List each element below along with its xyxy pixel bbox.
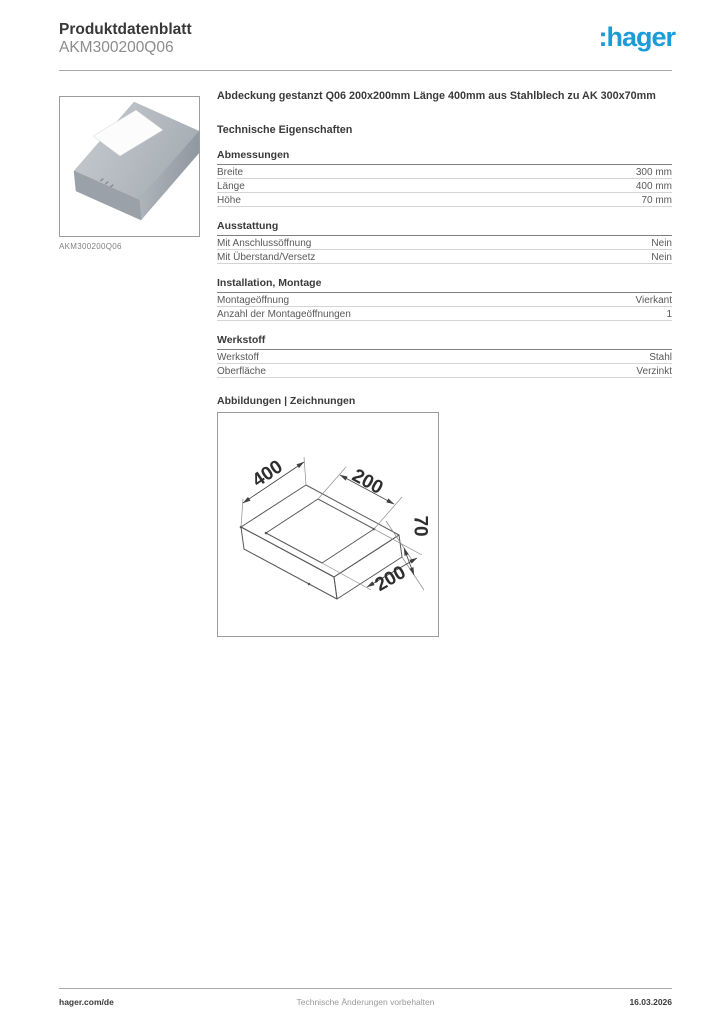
table-row: Anzahl der Montageöffnungen 1 <box>217 307 672 321</box>
table-row: Höhe 70 mm <box>217 193 672 207</box>
technical-drawing-frame: 400 200 70 200 <box>217 412 439 637</box>
product-photo-caption: AKM300200Q06 <box>59 242 122 251</box>
header-divider <box>59 70 672 71</box>
row-value: 70 mm <box>641 195 672 206</box>
section-title: Ausstattung <box>217 220 672 236</box>
section-ausstattung: Ausstattung Mit Anschlussöffnung Nein Mi… <box>217 220 672 264</box>
product-description: Abdeckung gestanzt Q06 200x200mm Länge 4… <box>217 90 672 102</box>
product-id: AKM300200Q06 <box>59 39 174 57</box>
dim-label-length: 400 <box>249 456 287 491</box>
row-label: Anzahl der Montageöffnungen <box>217 309 351 320</box>
row-value: Stahl <box>649 352 672 363</box>
row-label: Werkstoff <box>217 352 259 363</box>
section-title: Installation, Montage <box>217 277 672 293</box>
hager-logo: :hager <box>598 22 675 53</box>
row-value: Vierkant <box>635 295 672 306</box>
row-label: Montageöffnung <box>217 295 289 306</box>
page-title: Produktdatenblatt <box>59 21 192 39</box>
section-title: Werkstoff <box>217 334 672 350</box>
row-label: Mit Anschlussöffnung <box>217 238 311 249</box>
table-row: Länge 400 mm <box>217 179 672 193</box>
dim-label-height: 70 <box>409 515 430 536</box>
row-label: Länge <box>217 181 245 192</box>
footer-disclaimer: Technische Änderungen vorbehalten <box>59 997 672 1007</box>
table-row: Breite 300 mm <box>217 165 672 179</box>
row-value: Verzinkt <box>636 366 672 377</box>
table-row: Oberfläche Verzinkt <box>217 364 672 378</box>
section-installation-montage: Installation, Montage Montageöffnung Vie… <box>217 277 672 321</box>
table-row: Werkstoff Stahl <box>217 350 672 364</box>
row-value: 300 mm <box>636 167 672 178</box>
row-value: Nein <box>651 252 672 263</box>
row-label: Oberfläche <box>217 366 266 377</box>
row-label: Höhe <box>217 195 241 206</box>
row-label: Breite <box>217 167 243 178</box>
row-value: 1 <box>666 309 672 320</box>
technical-drawing: 400 200 70 200 <box>218 413 438 636</box>
footer-website: hager.com/de <box>59 997 114 1007</box>
content-column: Abdeckung gestanzt Q06 200x200mm Länge 4… <box>217 90 672 637</box>
dim-label-hole-width: 200 <box>348 465 386 499</box>
tech-properties-heading: Technische Eigenschaften <box>217 124 672 136</box>
row-value: Nein <box>651 238 672 249</box>
section-werkstoff: Werkstoff Werkstoff Stahl Oberfläche Ver… <box>217 334 672 378</box>
product-photo-frame <box>59 96 200 237</box>
section-abmessungen: Abmessungen Breite 300 mm Länge 400 mm H… <box>217 149 672 207</box>
dim-label-hole-length: 200 <box>372 562 410 596</box>
footer-divider <box>59 988 672 989</box>
table-row: Montageöffnung Vierkant <box>217 293 672 307</box>
product-photo <box>60 97 199 236</box>
table-row: Mit Anschlussöffnung Nein <box>217 236 672 250</box>
drawings-heading: Abbildungen | Zeichnungen <box>217 395 672 407</box>
row-label: Mit Überstand/Versetz <box>217 252 315 263</box>
footer-date: 16.03.2026 <box>629 997 672 1007</box>
row-value: 400 mm <box>636 181 672 192</box>
section-title: Abmessungen <box>217 149 672 165</box>
table-row: Mit Überstand/Versetz Nein <box>217 250 672 264</box>
